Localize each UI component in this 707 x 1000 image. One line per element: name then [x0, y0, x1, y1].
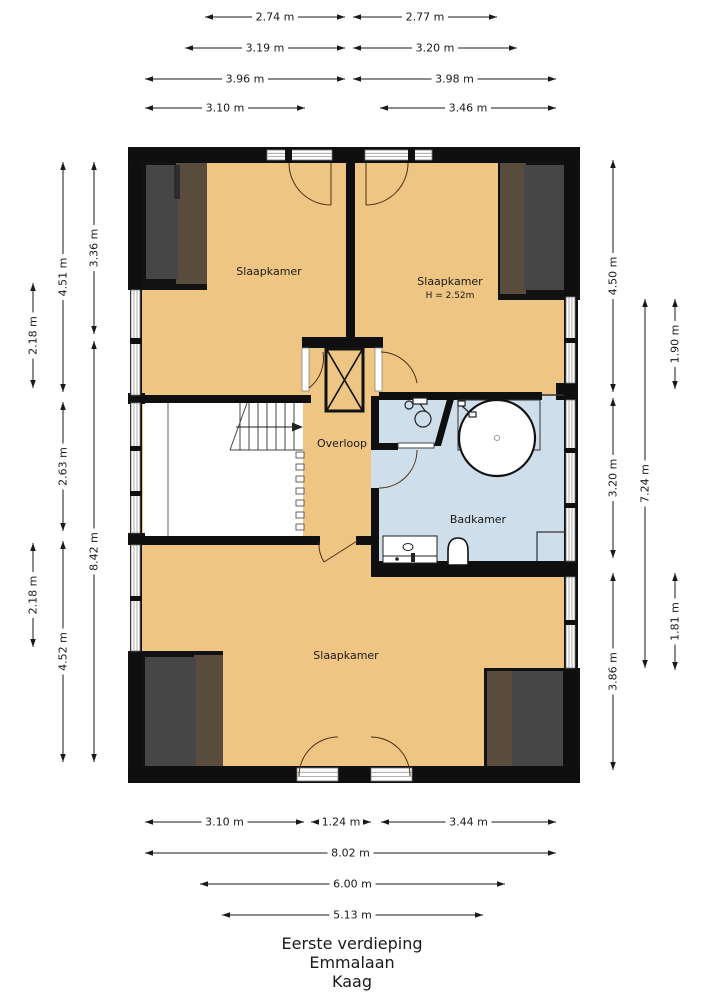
wall-stair-bottom [128, 536, 320, 545]
dimension: 3.98 m [353, 73, 556, 86]
dimension: 4.50 m [607, 160, 620, 392]
floor-plan-canvas: Slaapkamer Slaapkamer H = 2.52m Overloop… [0, 0, 707, 1000]
dimension: 1.24 m [311, 816, 371, 829]
dimension: 1.90 m [669, 299, 682, 389]
dimension: 3.10 m [145, 102, 305, 115]
round-bathtub-icon [459, 400, 535, 476]
dimension-label: 3.20 m [607, 459, 620, 498]
dimension-label: 4.51 m [57, 258, 70, 297]
dimension-label: 3.98 m [435, 73, 474, 86]
dimension: 3.44 m [381, 816, 556, 829]
dimension-label: 4.52 m [57, 632, 70, 671]
title-floor: Eerste verdieping [281, 934, 422, 953]
wall-shower-stub [379, 443, 398, 450]
dimension-label: 2.63 m [57, 447, 70, 486]
label-bedroom-top-right: Slaapkamer [417, 275, 483, 288]
dimension: 8.02 m [145, 847, 556, 860]
dimension-label: 1.81 m [669, 602, 682, 641]
dimension-label: 7.24 m [639, 464, 652, 503]
dimension-label: 3.20 m [416, 42, 455, 55]
dimension-label: 3.86 m [607, 652, 620, 691]
toilet-icon [448, 538, 468, 565]
floor-plan-page: Slaapkamer Slaapkamer H = 2.52m Overloop… [0, 0, 707, 1000]
dimension: 2.74 m [205, 11, 345, 24]
dimension-label: 3.10 m [206, 102, 245, 115]
wall-center-bedrooms [346, 160, 355, 341]
dimension-label: 1.90 m [669, 325, 682, 364]
door-jamb-left [302, 348, 309, 391]
dimension-label: 5.13 m [333, 909, 372, 922]
wall-bottom [128, 766, 580, 783]
wall-stair-top [128, 395, 311, 403]
label-landing: Overloop [317, 437, 367, 450]
dimension-label: 8.02 m [331, 847, 370, 860]
label-bedroom-top-left: Slaapkamer [236, 265, 302, 278]
title-city: Kaag [332, 972, 372, 991]
dimension-label: 2.18 m [27, 316, 40, 355]
bathroom-door-opening [371, 450, 379, 488]
dimension: 2.77 m [353, 11, 497, 24]
dimension: 3.20 m [607, 398, 620, 558]
dimension: 1.81 m [669, 573, 682, 670]
dimension: 5.13 m [222, 909, 483, 922]
dimension: 6.00 m [200, 878, 505, 891]
dimension-label: 3.44 m [449, 816, 488, 829]
dimension-label: 6.00 m [333, 878, 372, 891]
dimension-label: 3.10 m [205, 816, 244, 829]
dimension: 3.19 m [185, 42, 345, 55]
dimension: 8.42 m [88, 341, 101, 762]
dimension: 3.20 m [353, 42, 517, 55]
dimension-label: 3.36 m [88, 229, 101, 268]
dimension: 3.10 m [145, 816, 304, 829]
dimension: 4.52 m [57, 541, 70, 762]
title-street: Emmalaan [309, 953, 394, 972]
label-bathroom: Badkamer [450, 513, 507, 526]
dimension: 3.96 m [145, 73, 345, 86]
dimension: 3.86 m [607, 573, 620, 770]
dimension-label: 8.42 m [88, 532, 101, 571]
dimension-label: 2.74 m [256, 11, 295, 24]
dimension: 3.46 m [380, 102, 556, 115]
dimension: 2.18 m [27, 283, 40, 388]
dimension-label: 2.77 m [406, 11, 445, 24]
title-block: Eerste verdieping Emmalaan Kaag [281, 934, 422, 991]
dimension-label: 4.50 m [607, 257, 620, 296]
shower-screen [398, 443, 434, 448]
wall-shaft-top [302, 337, 383, 348]
wall-bathroom-top [379, 392, 542, 400]
label-bedroom-bottom: Slaapkamer [313, 649, 379, 662]
dimension: 2.63 m [57, 402, 70, 531]
dimension: 3.36 m [88, 162, 101, 334]
dimension-label: 3.19 m [246, 42, 285, 55]
stairwell-void [143, 402, 303, 537]
dimension-label: 2.18 m [27, 576, 40, 615]
sink-icon [383, 536, 437, 563]
dimension: 4.51 m [57, 162, 70, 392]
label-bedroom-height: H = 2.52m [426, 291, 475, 301]
dimension: 2.18 m [27, 543, 40, 647]
corner-block-bottom-left [128, 651, 223, 783]
dimension-label: 1.24 m [322, 816, 361, 829]
door-jamb-right [375, 348, 382, 391]
stair-lower-treads [296, 452, 304, 530]
dimension: 7.24 m [639, 299, 652, 668]
dimension-label: 3.46 m [449, 102, 488, 115]
dimension-label: 3.96 m [226, 73, 265, 86]
